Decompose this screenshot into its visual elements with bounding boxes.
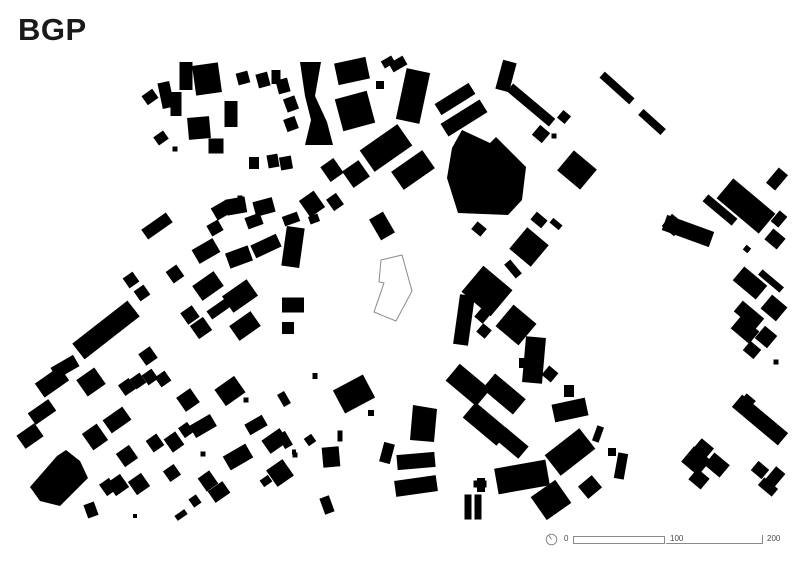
site-plan-page: BGP 0 100 200	[0, 0, 800, 565]
north-indicator-icon	[545, 533, 558, 546]
scale-segment-100-200	[666, 535, 763, 544]
site-outline-polygon	[374, 255, 412, 321]
figure-ground-map	[0, 0, 800, 565]
scale-segment-0-100	[573, 536, 665, 544]
scale-label-200: 200	[767, 534, 780, 544]
scale-bar: 0 100 200	[545, 532, 797, 548]
page-title: BGP	[18, 12, 87, 48]
scale-label-0: 0	[564, 534, 568, 544]
